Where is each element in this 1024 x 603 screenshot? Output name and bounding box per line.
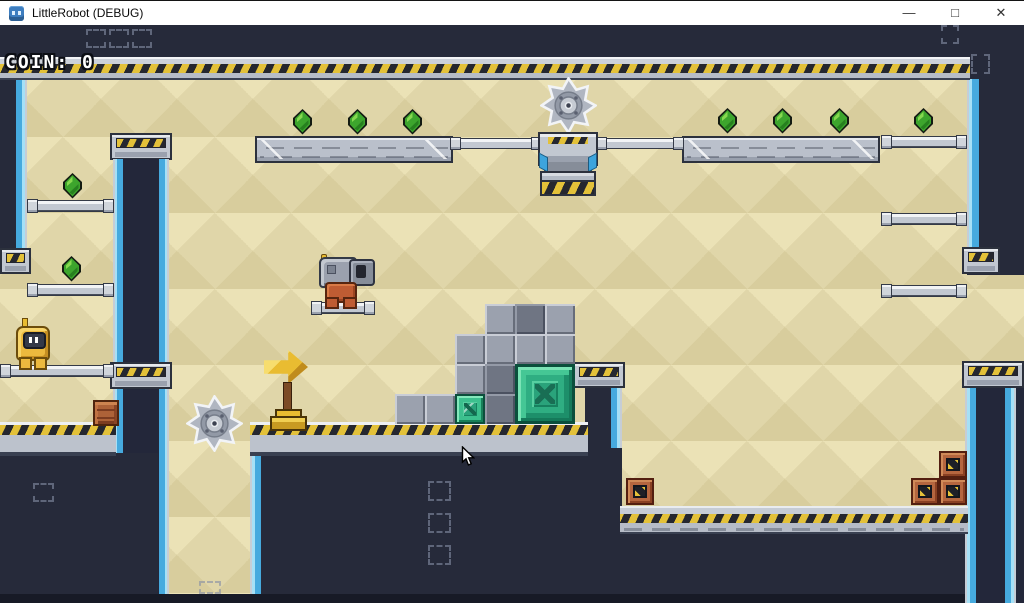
gem-icon <box>829 108 850 134</box>
gem <box>402 109 423 135</box>
rail-crusher-right <box>596 138 684 149</box>
top-hazard-bar <box>0 57 970 80</box>
hud-band <box>0 25 1024 59</box>
enemy-leg <box>343 297 357 309</box>
debug-marker <box>971 54 990 74</box>
hazard-crate <box>911 478 939 505</box>
app-window: LittleRobot (DEBUG) — □ ✕ COIN: 0 <box>0 0 1024 603</box>
debug-marker <box>33 483 54 502</box>
game-viewport[interactable]: COIN: 0 <box>0 25 1024 603</box>
metal-block-dark <box>485 364 515 394</box>
cursor-arrow-icon <box>461 446 475 467</box>
metal-block <box>515 334 545 364</box>
close-button[interactable]: ✕ <box>978 1 1024 25</box>
debug-marker <box>428 481 451 501</box>
gem-icon <box>62 173 83 199</box>
center-pit-edge <box>250 451 261 594</box>
arrow-signpost <box>264 350 309 427</box>
metal-block <box>545 304 575 334</box>
gem <box>62 173 83 199</box>
signpost-base <box>270 416 307 431</box>
debug-marker <box>428 513 451 533</box>
metal-block <box>395 394 425 424</box>
metal-platform-left <box>255 136 453 163</box>
hazard-crate <box>626 478 654 505</box>
window-titlebar[interactable]: LittleRobot (DEBUG) — □ ✕ <box>0 1 1024 25</box>
gem <box>717 108 738 134</box>
rail-right-1 <box>881 213 967 225</box>
rail-right-2 <box>881 285 967 297</box>
left-pit <box>0 453 158 594</box>
player-visor <box>23 332 46 349</box>
column-b-cap <box>962 361 1024 388</box>
rail-left-2 <box>27 284 114 296</box>
gem-icon <box>61 256 82 282</box>
minimize-button[interactable]: — <box>886 1 932 25</box>
gem <box>829 108 850 134</box>
metal-block <box>455 334 485 364</box>
coin-label: COIN: <box>5 52 69 73</box>
ground-right <box>620 506 968 534</box>
saw-blade-top <box>540 77 597 134</box>
arrow-sign-icon <box>264 350 308 384</box>
column-a-upper <box>113 159 169 365</box>
debug-marker <box>109 29 129 48</box>
crusher-press <box>536 132 600 192</box>
player-leg <box>34 357 47 370</box>
player-leg <box>19 357 32 370</box>
saw-blade-lower <box>186 395 243 452</box>
hazard-crate <box>939 451 967 478</box>
metal-block <box>485 304 515 334</box>
hazard-crate <box>939 478 967 505</box>
debug-marker <box>86 29 106 48</box>
rail-crusher-left <box>450 138 542 149</box>
gem <box>292 109 313 135</box>
metal-block <box>455 364 485 394</box>
gem-icon <box>402 109 423 135</box>
rail-top-right <box>881 136 967 148</box>
column-a-mid-cap <box>110 362 172 389</box>
gem-icon <box>913 108 934 134</box>
rail-left-1 <box>27 200 114 212</box>
window-title: LittleRobot (DEBUG) <box>32 6 143 20</box>
right-wall-bracket <box>962 247 1000 274</box>
column-a-top-cap <box>110 133 172 160</box>
debug-marker <box>941 25 959 44</box>
left-wall-cap <box>0 248 31 274</box>
metal-block <box>485 334 515 364</box>
cannon-enemy <box>313 254 373 306</box>
gem <box>913 108 934 134</box>
player-robot <box>15 318 49 367</box>
maximize-button[interactable]: □ <box>932 1 978 25</box>
gem-icon <box>717 108 738 134</box>
center-wall-cap <box>573 362 625 388</box>
emerald-block-small <box>455 394 485 424</box>
saw-blade-icon <box>540 77 597 134</box>
metal-block <box>425 394 455 424</box>
metal-block-dark <box>515 304 545 334</box>
gem-icon <box>347 109 368 135</box>
gem <box>347 109 368 135</box>
crusher-hazard-pad <box>540 180 596 196</box>
emerald-block-large <box>515 364 575 424</box>
metal-platform-right <box>682 136 880 163</box>
ground-left <box>0 422 116 456</box>
right-wall-edge <box>967 79 979 249</box>
debug-marker <box>199 581 221 594</box>
wooden-crate <box>93 400 119 426</box>
right-pit <box>620 532 968 594</box>
gem <box>772 108 793 134</box>
window-controls: — □ ✕ <box>886 1 1024 25</box>
metal-block-dark <box>485 394 515 424</box>
debug-marker <box>428 545 451 565</box>
saw-blade-icon <box>186 395 243 452</box>
app-icon <box>9 6 24 21</box>
left-wall-edge <box>16 77 27 251</box>
mouse-cursor <box>461 446 475 467</box>
enemy-leg <box>325 297 339 309</box>
debug-marker <box>132 29 152 48</box>
bottom-strip <box>0 594 965 603</box>
gem-icon <box>772 108 793 134</box>
coin-value: 0 <box>82 52 95 73</box>
column-b <box>965 388 1024 603</box>
gem <box>61 256 82 282</box>
coin-hud: COIN: 0 <box>5 52 95 73</box>
gem-icon <box>292 109 313 135</box>
metal-block <box>545 334 575 364</box>
